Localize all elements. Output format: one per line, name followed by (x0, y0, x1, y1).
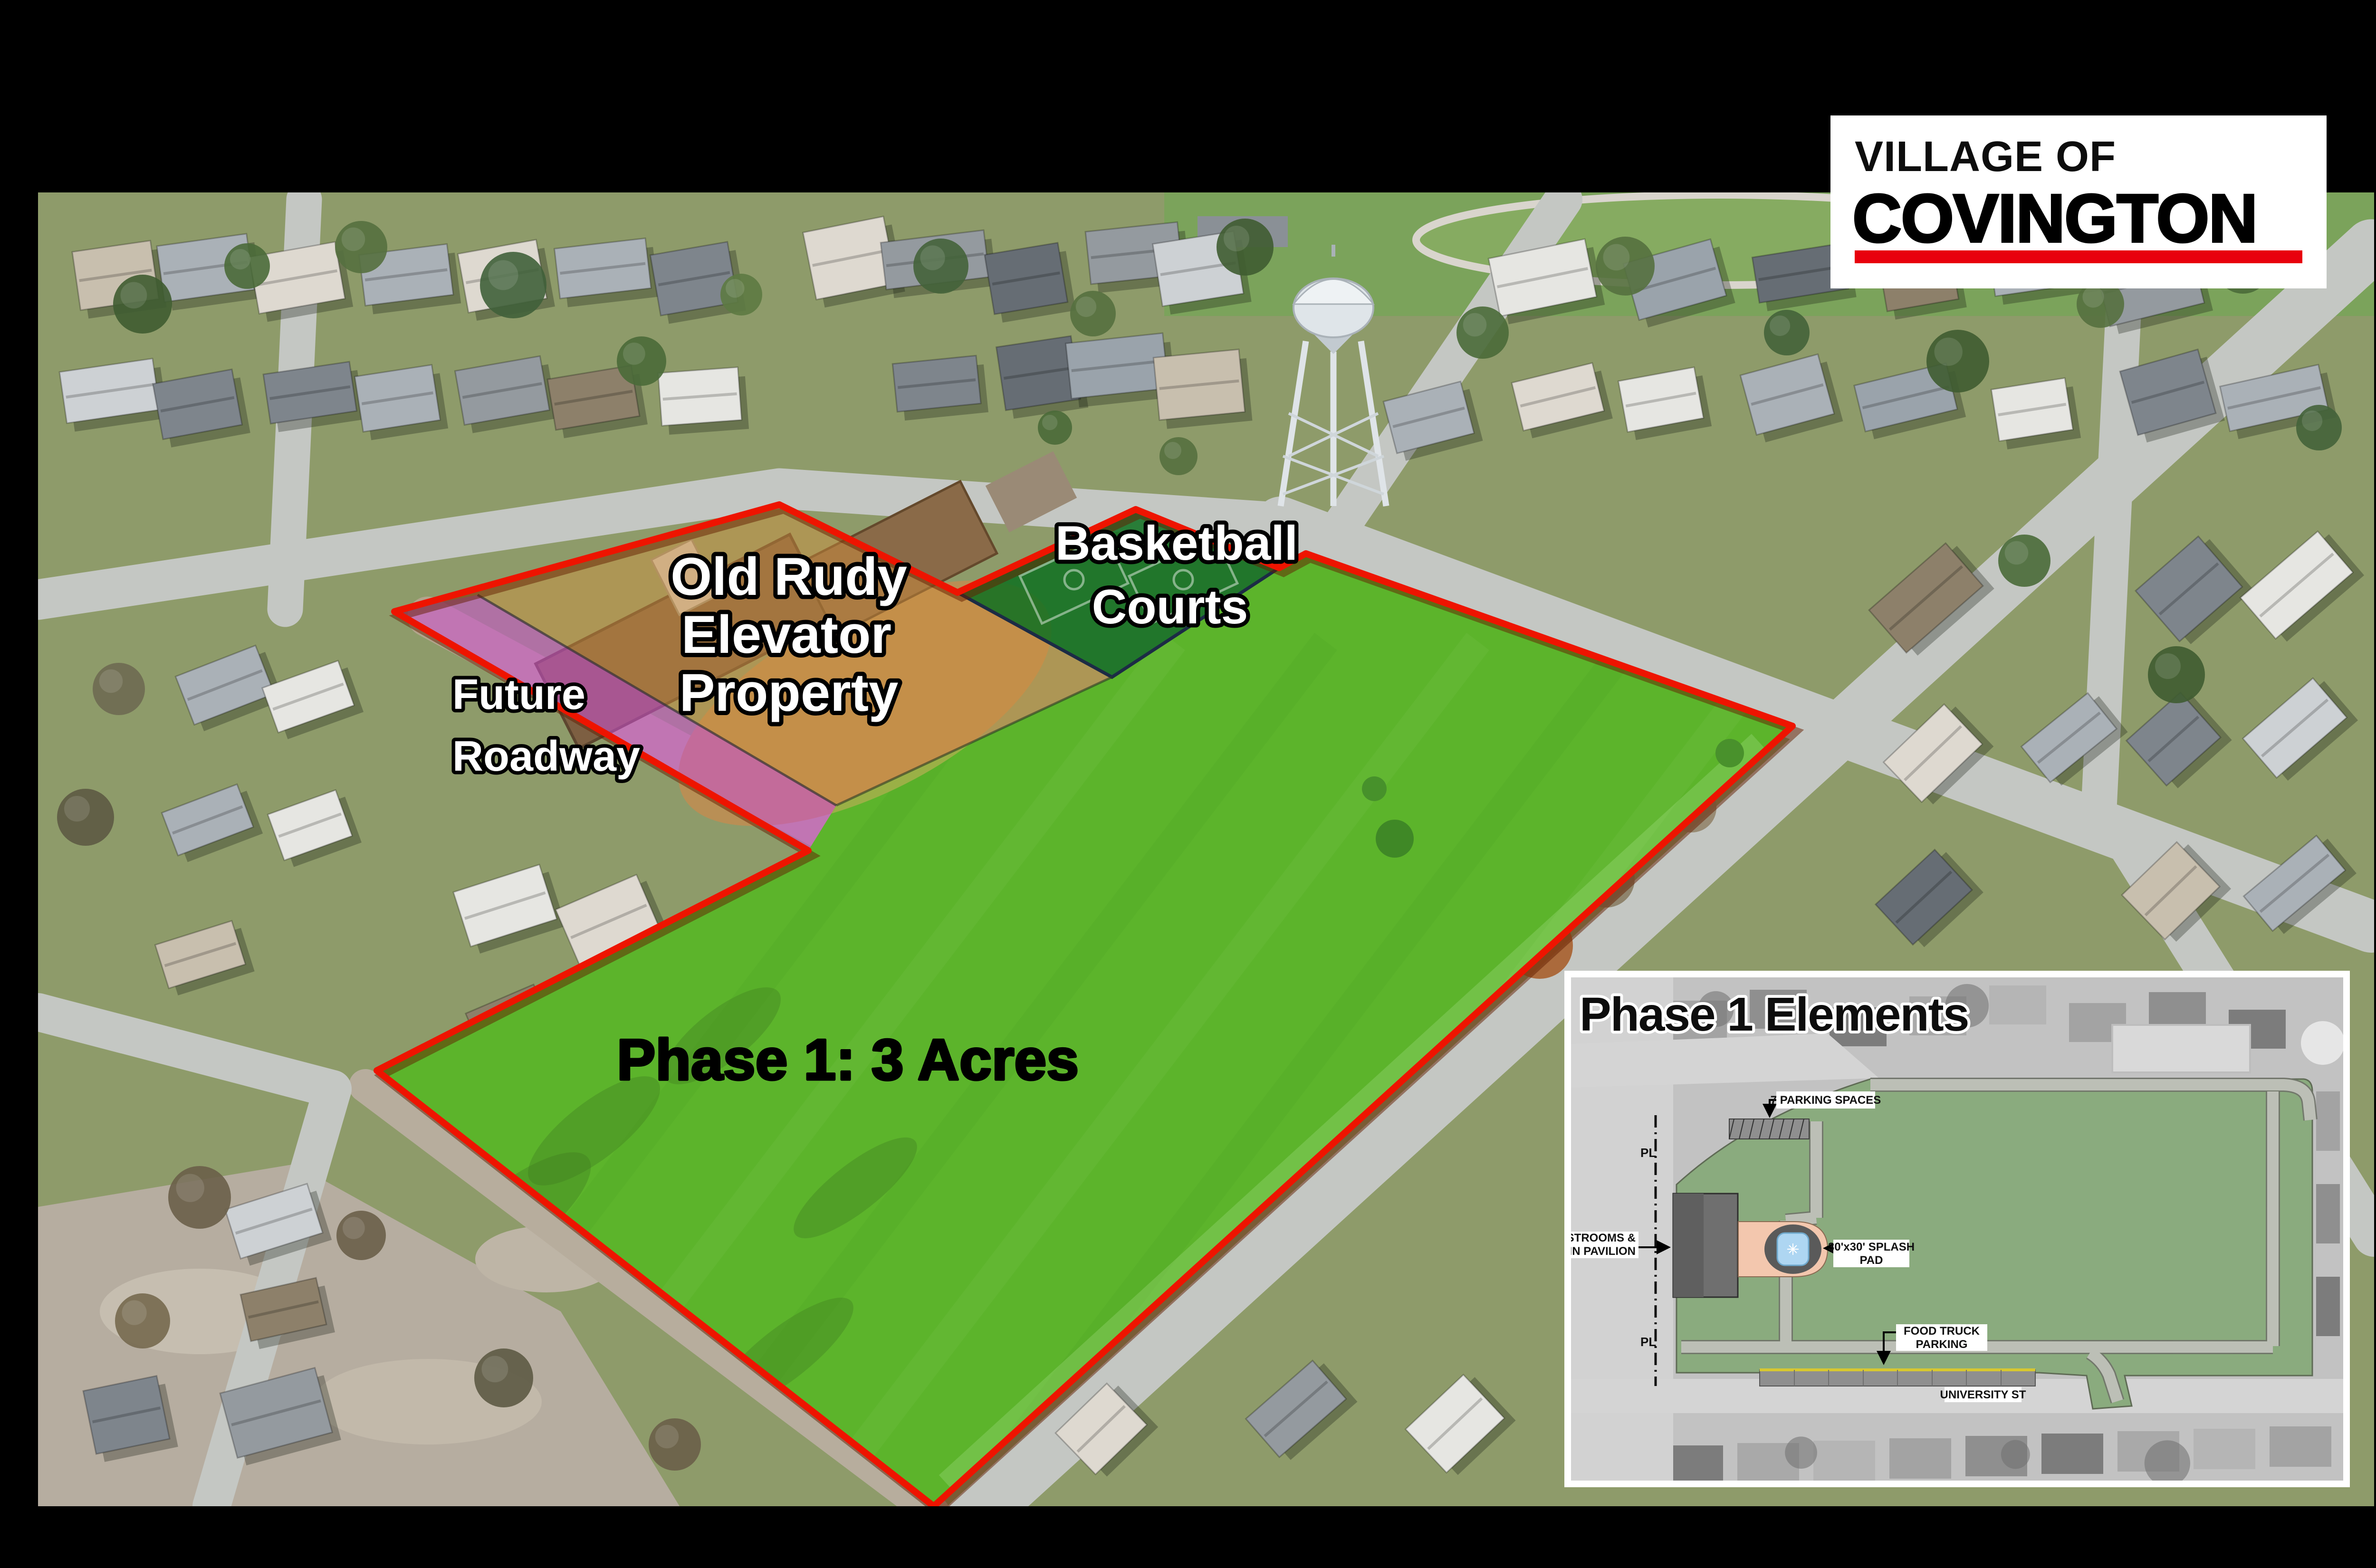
food-truck-label-line2: PARKING (1916, 1338, 1968, 1351)
plan-splash-pad (1738, 1222, 1828, 1277)
plan-parking-spaces (1729, 1119, 1809, 1139)
inset-title: Phase 1 Elements (1580, 988, 1968, 1041)
splash-label-line2: PAD (1860, 1254, 1883, 1267)
university-st-label: UNIVERSITY ST (1940, 1388, 2026, 1401)
logo-red-underline (1855, 250, 2302, 263)
svg-text:Elevator: Elevator (681, 605, 891, 664)
food-truck-label-line1: FOOD TRUCK (1904, 1325, 1980, 1338)
plan-pavilion-building (1673, 1194, 1738, 1297)
logo-line1: VILLAGE OF (1855, 133, 2116, 182)
pl-label: PL (1640, 1335, 1656, 1349)
splash-label-line1: 30'x30' SPLASH (1828, 1241, 1915, 1253)
phase1-elements-inset: PL PL 7 PARKING SPACES RESTROOMS & MAIN … (1564, 971, 2350, 1487)
plan-food-truck-parking (1760, 1370, 2035, 1386)
label-phase1-acres: Phase 1: 3 Acres (617, 1027, 1079, 1092)
svg-text:Property: Property (680, 663, 899, 722)
svg-text:Future: Future (452, 671, 585, 718)
site-plan: PL PL 7 PARKING SPACES RESTROOMS & MAIN … (1571, 977, 2343, 1481)
parking-label: 7 PARKING SPACES (1771, 1094, 1881, 1107)
flyer-page: Old Rudy Elevator Property Basketball Co… (0, 0, 2376, 1568)
inset-court (2112, 1025, 2250, 1072)
restrooms-label-line2: MAIN PAVILION (1571, 1245, 1636, 1258)
pl-label: PL (1640, 1146, 1656, 1160)
inset-tank (2300, 1020, 2343, 1066)
logo-line2: COVINGTON (1852, 179, 2257, 258)
svg-text:Old Rudy: Old Rudy (671, 547, 907, 606)
village-of-covington-logo: VILLAGE OF COVINGTON (1830, 115, 2327, 288)
restrooms-label-line1: RESTROOMS & (1571, 1232, 1636, 1244)
svg-text:Basketball: Basketball (1055, 516, 1298, 570)
label-old-rudy: Old Rudy Elevator Property (671, 547, 907, 722)
svg-text:Roadway: Roadway (452, 733, 640, 780)
svg-text:Courts: Courts (1092, 580, 1248, 634)
